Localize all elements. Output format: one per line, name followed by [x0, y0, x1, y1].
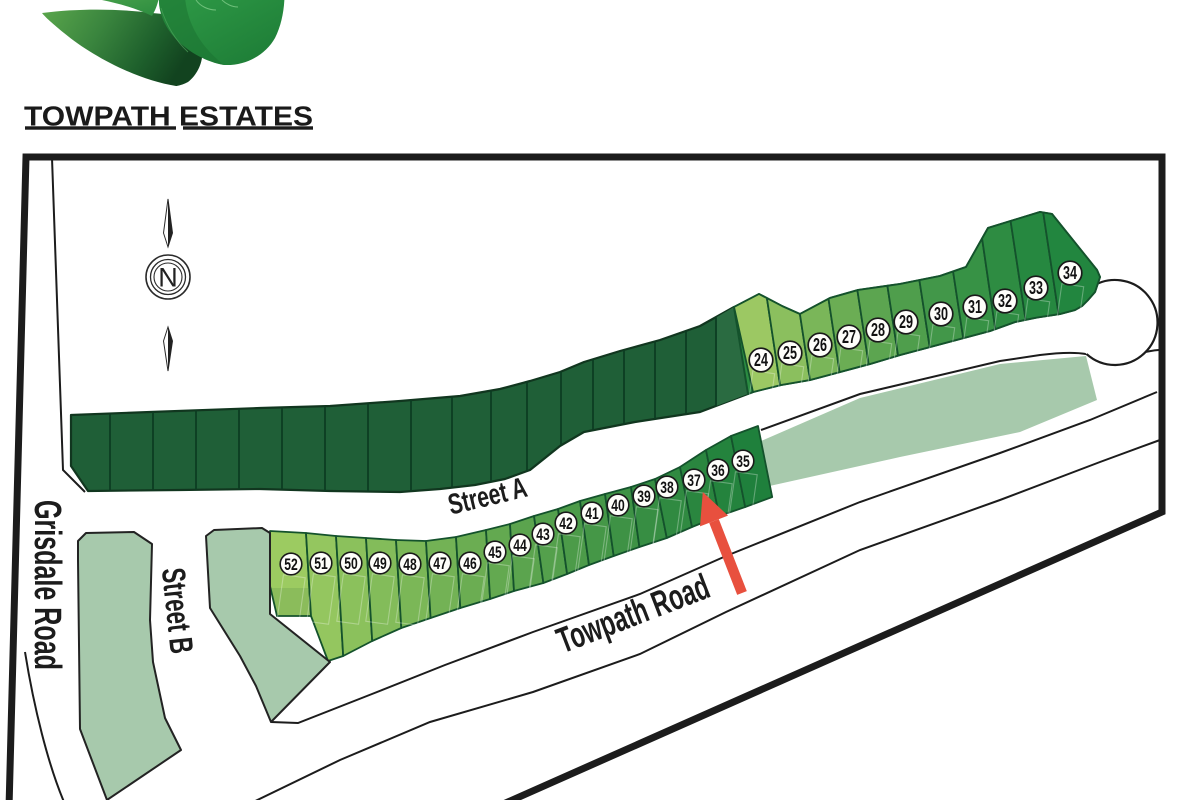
svg-text:25: 25 — [783, 343, 797, 363]
svg-text:35: 35 — [736, 452, 750, 471]
svg-text:32: 32 — [998, 291, 1012, 311]
svg-text:48: 48 — [403, 555, 417, 574]
svg-text:41: 41 — [585, 504, 599, 523]
svg-text:29: 29 — [899, 312, 913, 332]
svg-text:34: 34 — [1063, 263, 1077, 283]
svg-text:26: 26 — [813, 335, 827, 355]
svg-text:37: 37 — [687, 471, 701, 490]
svg-text:N: N — [158, 263, 178, 293]
svg-text:27: 27 — [842, 327, 856, 347]
svg-text:33: 33 — [1029, 278, 1043, 298]
svg-text:52: 52 — [284, 555, 298, 574]
svg-text:51: 51 — [314, 554, 328, 573]
svg-text:50: 50 — [344, 554, 358, 573]
svg-text:40: 40 — [611, 496, 625, 515]
svg-text:31: 31 — [968, 297, 982, 317]
svg-text:38: 38 — [660, 478, 674, 497]
svg-text:30: 30 — [934, 304, 948, 324]
svg-text:24: 24 — [754, 350, 768, 370]
svg-text:Street B: Street B — [155, 566, 201, 655]
svg-text:43: 43 — [536, 525, 550, 544]
svg-text:45: 45 — [488, 543, 502, 562]
svg-text:39: 39 — [637, 487, 651, 506]
svg-text:Towpath Road: Towpath Road — [551, 565, 715, 661]
svg-text:28: 28 — [871, 320, 885, 340]
svg-text:36: 36 — [711, 461, 725, 480]
svg-text:47: 47 — [433, 554, 447, 573]
svg-text:Grisdale Road: Grisdale Road — [26, 500, 68, 670]
svg-text:46: 46 — [463, 554, 477, 573]
svg-text:42: 42 — [559, 514, 573, 533]
svg-text:44: 44 — [513, 536, 527, 555]
svg-text:49: 49 — [373, 554, 387, 573]
